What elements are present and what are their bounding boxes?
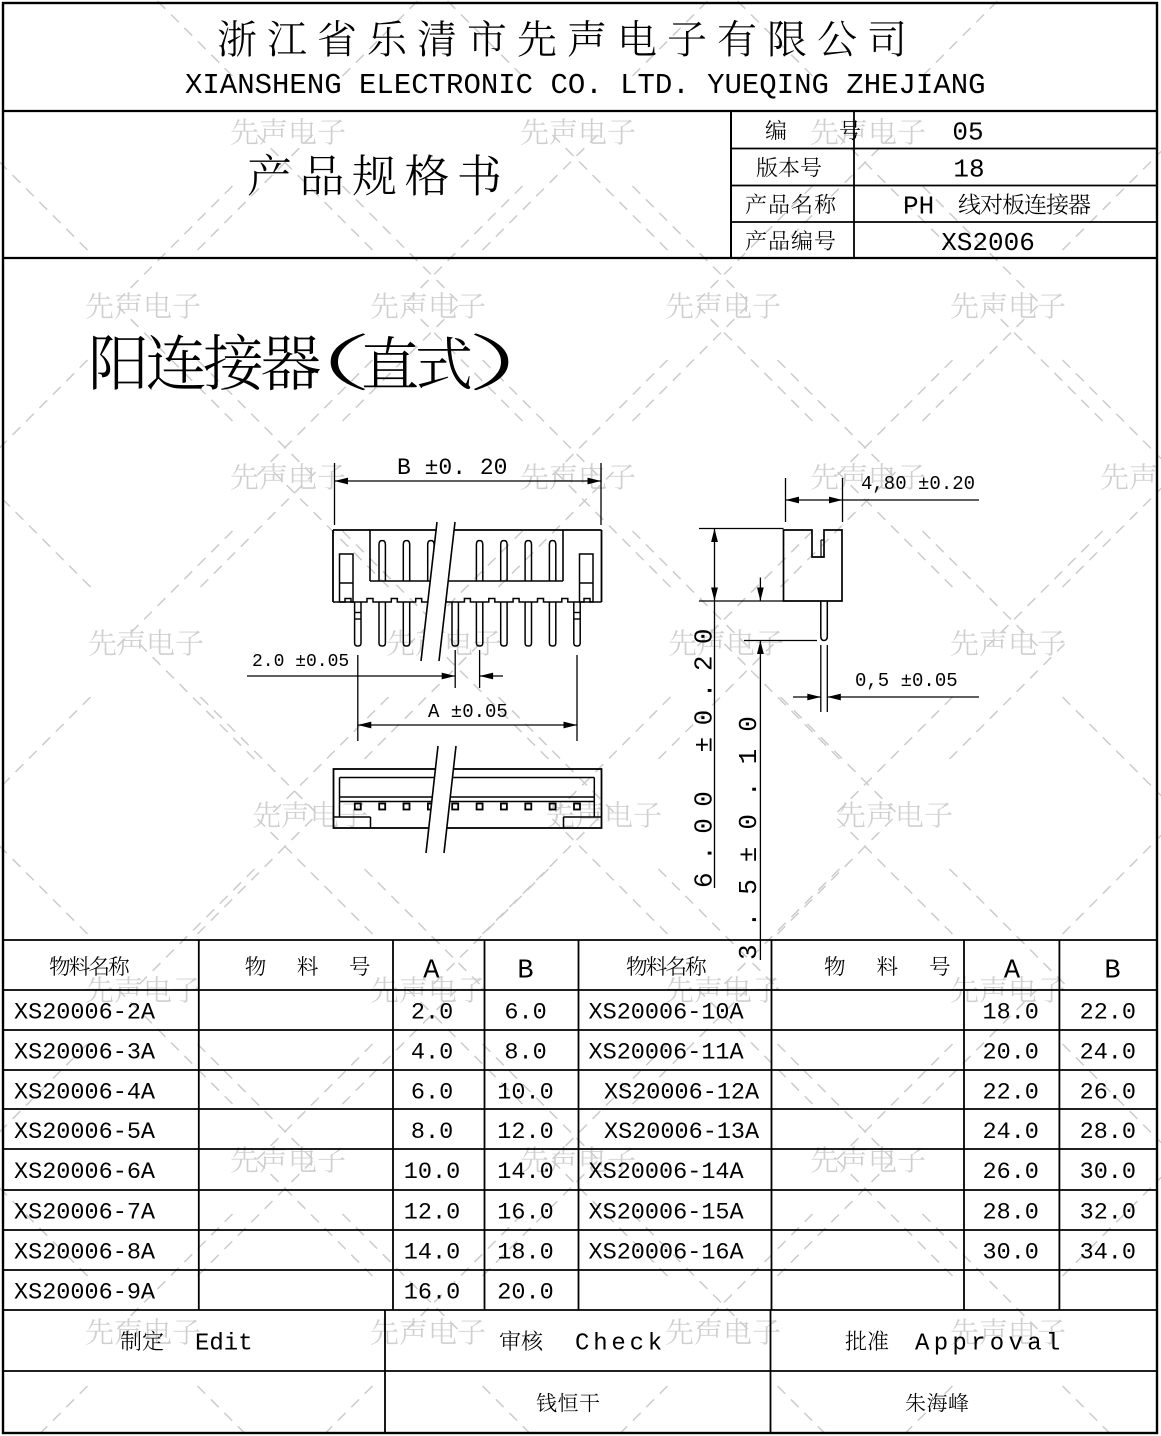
svg-text:XS20006-6A: XS20006-6A bbox=[14, 1159, 156, 1186]
svg-text:XS2006: XS2006 bbox=[941, 228, 1035, 258]
svg-text:6.0: 6.0 bbox=[411, 1080, 453, 1107]
svg-text:3.5±0.10: 3.5±0.10 bbox=[734, 699, 764, 960]
svg-text:XS20006-7A: XS20006-7A bbox=[14, 1200, 156, 1227]
svg-text:12.0: 12.0 bbox=[497, 1119, 553, 1146]
svg-text:16.0: 16.0 bbox=[497, 1200, 553, 1227]
svg-text:10.0: 10.0 bbox=[404, 1159, 460, 1186]
svg-text:4,80 ±0.20: 4,80 ±0.20 bbox=[861, 473, 975, 495]
svg-text:10.0: 10.0 bbox=[497, 1080, 553, 1107]
svg-text:24.0: 24.0 bbox=[983, 1119, 1039, 1146]
svg-text:22.0: 22.0 bbox=[983, 1080, 1039, 1107]
svg-text:XS20006-3A: XS20006-3A bbox=[14, 1040, 156, 1067]
svg-text:Edit: Edit bbox=[195, 1330, 253, 1357]
svg-text:XIANSHENG ELECTRONIC CO. LTD.: XIANSHENG ELECTRONIC CO. LTD. YUEQING ZH… bbox=[185, 69, 986, 102]
svg-text:24.0: 24.0 bbox=[1080, 1040, 1136, 1067]
svg-text:30.0: 30.0 bbox=[1080, 1159, 1136, 1186]
svg-text:6.00 ±0.20: 6.00 ±0.20 bbox=[690, 617, 720, 888]
svg-text:XS20006-2A: XS20006-2A bbox=[14, 1000, 156, 1027]
svg-text:XS20006-16A: XS20006-16A bbox=[589, 1240, 745, 1267]
svg-text:XS20006-9A: XS20006-9A bbox=[14, 1280, 156, 1307]
svg-text:XS20006-4A: XS20006-4A bbox=[14, 1080, 156, 1107]
svg-text:2.0 ±0.05: 2.0 ±0.05 bbox=[252, 652, 349, 672]
svg-text:12.0: 12.0 bbox=[404, 1200, 460, 1227]
svg-text:XS20006-5A: XS20006-5A bbox=[14, 1119, 156, 1146]
svg-text:20.0: 20.0 bbox=[497, 1280, 553, 1307]
svg-text:18.0: 18.0 bbox=[497, 1240, 553, 1267]
svg-text:14.0: 14.0 bbox=[404, 1240, 460, 1267]
svg-text:A ±0.05: A ±0.05 bbox=[428, 701, 508, 723]
svg-text:A: A bbox=[423, 957, 440, 987]
svg-text:XS20006-15A: XS20006-15A bbox=[589, 1200, 745, 1227]
svg-text:34.0: 34.0 bbox=[1080, 1240, 1136, 1267]
svg-text:32.0: 32.0 bbox=[1080, 1200, 1136, 1227]
svg-text:B ±0. 20: B ±0. 20 bbox=[397, 455, 507, 481]
svg-text:20.0: 20.0 bbox=[983, 1040, 1039, 1067]
svg-text:18.0: 18.0 bbox=[983, 1000, 1039, 1027]
svg-text:26.0: 26.0 bbox=[1080, 1080, 1136, 1107]
svg-text:Approval: Approval bbox=[915, 1330, 1065, 1357]
svg-text:22.0: 22.0 bbox=[1080, 1000, 1136, 1027]
svg-text:14.0: 14.0 bbox=[497, 1159, 553, 1186]
svg-text:2.0: 2.0 bbox=[411, 1000, 453, 1027]
svg-text:XS20006-10A: XS20006-10A bbox=[589, 1000, 745, 1027]
svg-text:XS20006-13A: XS20006-13A bbox=[604, 1119, 760, 1146]
svg-text:28.0: 28.0 bbox=[983, 1200, 1039, 1227]
svg-text:18: 18 bbox=[953, 155, 984, 185]
svg-text:4.0: 4.0 bbox=[411, 1040, 453, 1067]
svg-text:XS20006-8A: XS20006-8A bbox=[14, 1240, 156, 1267]
svg-text:XS20006-11A: XS20006-11A bbox=[589, 1040, 745, 1067]
svg-text:26.0: 26.0 bbox=[983, 1159, 1039, 1186]
svg-text:B: B bbox=[1104, 957, 1120, 987]
svg-text:6.0: 6.0 bbox=[504, 1000, 546, 1027]
svg-text:XS20006-12A: XS20006-12A bbox=[604, 1080, 760, 1107]
svg-text:28.0: 28.0 bbox=[1080, 1119, 1136, 1146]
svg-text:16.0: 16.0 bbox=[404, 1280, 460, 1307]
svg-text:8.0: 8.0 bbox=[504, 1040, 546, 1067]
svg-text:05: 05 bbox=[952, 118, 983, 148]
svg-text:0,5 ±0.05: 0,5 ±0.05 bbox=[855, 670, 958, 692]
svg-text:B: B bbox=[517, 957, 533, 987]
svg-text:XS20006-14A: XS20006-14A bbox=[589, 1159, 745, 1186]
svg-text:Check: Check bbox=[575, 1330, 666, 1357]
svg-text:A: A bbox=[1004, 957, 1021, 987]
svg-text:8.0: 8.0 bbox=[411, 1119, 453, 1146]
svg-text:PH: PH bbox=[903, 191, 934, 221]
svg-text:30.0: 30.0 bbox=[983, 1240, 1039, 1267]
